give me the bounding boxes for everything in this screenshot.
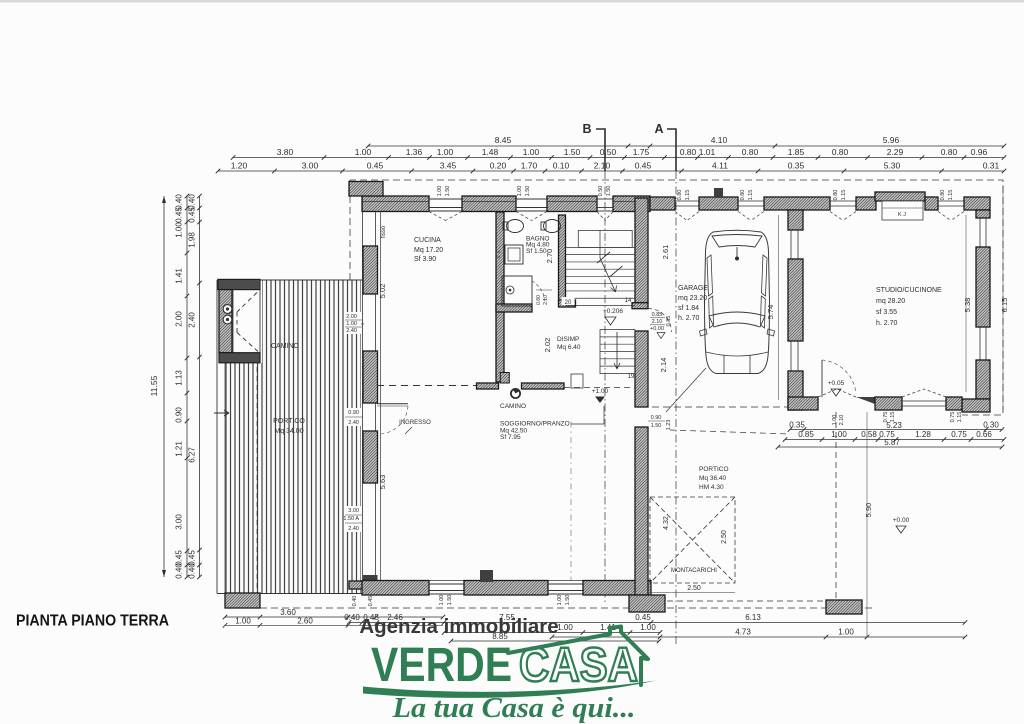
svg-text:0.80: 0.80 bbox=[833, 190, 839, 201]
svg-text:mq 28.20: mq 28.20 bbox=[876, 298, 905, 305]
svg-text:1.00: 1.00 bbox=[832, 415, 838, 426]
svg-text:1.00: 1.00 bbox=[439, 595, 445, 606]
svg-text:1.00: 1.00 bbox=[831, 430, 847, 439]
svg-text:1.13: 1.13 bbox=[175, 370, 184, 386]
svg-text:2.14: 2.14 bbox=[659, 358, 668, 373]
svg-text:2.02: 2.02 bbox=[543, 338, 552, 353]
svg-text:1.00: 1.00 bbox=[557, 595, 563, 606]
svg-text:19: 19 bbox=[628, 374, 635, 380]
svg-text:5.30: 5.30 bbox=[884, 161, 901, 171]
svg-text:1.00: 1.00 bbox=[523, 147, 540, 157]
svg-text:La tua Casa è qui...: La tua Casa è qui... bbox=[391, 693, 635, 724]
svg-text:0.90: 0.90 bbox=[651, 415, 662, 421]
svg-text:2.40: 2.40 bbox=[348, 420, 359, 426]
svg-text:Mq 34.00: Mq 34.00 bbox=[274, 428, 303, 435]
svg-text:0.80: 0.80 bbox=[941, 147, 958, 157]
svg-text:h. 2.70: h. 2.70 bbox=[678, 315, 700, 322]
svg-text:0.40: 0.40 bbox=[352, 596, 358, 607]
svg-text:Sf 7.95: Sf 7.95 bbox=[500, 434, 521, 441]
svg-text:1.00: 1.00 bbox=[437, 147, 454, 157]
svg-text:0.66: 0.66 bbox=[976, 430, 992, 439]
svg-text:1.98: 1.98 bbox=[188, 232, 197, 248]
svg-text:0.96: 0.96 bbox=[971, 147, 988, 157]
svg-text:1.50: 1.50 bbox=[651, 423, 662, 429]
svg-text:1.50: 1.50 bbox=[445, 186, 451, 197]
svg-text:3.00: 3.00 bbox=[348, 508, 359, 514]
svg-text:CAMINO: CAMINO bbox=[271, 343, 300, 350]
svg-text:0.75: 0.75 bbox=[951, 430, 967, 439]
svg-text:DISIMP: DISIMP bbox=[557, 336, 579, 343]
svg-text:1.48: 1.48 bbox=[482, 147, 499, 157]
svg-text:0.45: 0.45 bbox=[367, 161, 384, 171]
svg-text:A: A bbox=[654, 122, 663, 136]
svg-text:2.00: 2.00 bbox=[346, 314, 357, 320]
svg-text:Sf 1.50: Sf 1.50 bbox=[526, 248, 547, 255]
svg-text:0.35: 0.35 bbox=[788, 161, 805, 171]
svg-text:MONTACARICHI: MONTACARICHI bbox=[671, 568, 717, 574]
svg-text:1.23: 1.23 bbox=[666, 420, 672, 431]
svg-text:5.38: 5.38 bbox=[963, 298, 972, 313]
svg-text:+0.206: +0.206 bbox=[603, 308, 623, 315]
svg-text:5.23: 5.23 bbox=[886, 421, 902, 430]
svg-text:Sf 3.90: Sf 3.90 bbox=[414, 256, 436, 263]
svg-text:1.00: 1.00 bbox=[517, 186, 523, 197]
svg-text:1.41: 1.41 bbox=[175, 268, 184, 284]
svg-text:h. 2.70: h. 2.70 bbox=[876, 320, 898, 327]
svg-text:mq 23.20: mq 23.20 bbox=[678, 295, 707, 302]
svg-text:5.96: 5.96 bbox=[883, 135, 900, 145]
svg-text:1.01: 1.01 bbox=[699, 147, 716, 157]
svg-text:1.15: 1.15 bbox=[948, 190, 954, 201]
svg-text:0.20: 0.20 bbox=[490, 161, 507, 171]
svg-text:0.40: 0.40 bbox=[175, 563, 184, 579]
svg-text:1.20: 1.20 bbox=[231, 161, 248, 171]
svg-text:0.80: 0.80 bbox=[940, 190, 946, 201]
svg-text:0.50: 0.50 bbox=[600, 147, 617, 157]
svg-text:5.63: 5.63 bbox=[378, 475, 387, 490]
svg-text:1.15: 1.15 bbox=[841, 190, 847, 201]
svg-text:GARAGE: GARAGE bbox=[678, 285, 708, 292]
svg-text:1.00: 1.00 bbox=[175, 222, 184, 238]
svg-text:1.50: 1.50 bbox=[525, 186, 531, 197]
svg-text:0.75: 0.75 bbox=[950, 412, 956, 423]
svg-text:2.29: 2.29 bbox=[887, 147, 904, 157]
svg-text:1.15: 1.15 bbox=[748, 190, 754, 201]
svg-text:VERDE: VERDE bbox=[371, 639, 512, 692]
svg-text:3.60: 3.60 bbox=[280, 608, 296, 617]
svg-text:Mq 6.40: Mq 6.40 bbox=[557, 344, 581, 351]
svg-text:K J: K J bbox=[898, 212, 906, 218]
svg-text:0.10: 0.10 bbox=[553, 161, 570, 171]
svg-text:B: B bbox=[582, 122, 591, 136]
svg-text:4.32: 4.32 bbox=[663, 516, 670, 530]
svg-text:sf 1.84: sf 1.84 bbox=[678, 305, 699, 312]
svg-text:+0.05: +0.05 bbox=[828, 380, 845, 387]
svg-text:+0.00: +0.00 bbox=[650, 326, 664, 332]
svg-text:0.30: 0.30 bbox=[983, 421, 999, 430]
svg-text:2.40: 2.40 bbox=[346, 328, 357, 334]
svg-text:1.00: 1.00 bbox=[235, 617, 251, 626]
svg-text:0.80: 0.80 bbox=[832, 147, 849, 157]
svg-text:3.45: 3.45 bbox=[440, 161, 457, 171]
svg-text:1.00: 1.00 bbox=[355, 147, 372, 157]
svg-text:1.50: 1.50 bbox=[447, 595, 453, 606]
svg-text:HM 4.30: HM 4.30 bbox=[699, 484, 724, 491]
svg-text:PORTICO: PORTICO bbox=[699, 466, 729, 473]
svg-text:20: 20 bbox=[565, 300, 572, 306]
svg-text:1.50: 1.50 bbox=[606, 186, 612, 197]
svg-text:5.90: 5.90 bbox=[864, 503, 873, 518]
svg-text:6.27: 6.27 bbox=[188, 447, 197, 463]
svg-text:2.60: 2.60 bbox=[297, 617, 313, 626]
svg-text:0.58: 0.58 bbox=[861, 430, 877, 439]
svg-text:0.90: 0.90 bbox=[348, 410, 359, 416]
svg-text:0.90: 0.90 bbox=[175, 407, 184, 423]
svg-text:2.70: 2.70 bbox=[545, 249, 554, 264]
svg-text:1.00: 1.00 bbox=[838, 628, 854, 637]
svg-text:1.85: 1.85 bbox=[788, 147, 805, 157]
svg-text:0.40: 0.40 bbox=[344, 613, 360, 622]
svg-text:1.00: 1.00 bbox=[640, 623, 656, 632]
svg-text:0.45: 0.45 bbox=[635, 613, 651, 622]
svg-text:A: A bbox=[361, 321, 364, 326]
svg-text:0.50: 0.50 bbox=[598, 186, 604, 197]
svg-text:fisso: fisso bbox=[381, 225, 387, 238]
svg-text:0.80: 0.80 bbox=[742, 147, 759, 157]
svg-text:2.50: 2.50 bbox=[687, 585, 701, 592]
svg-text:8.45: 8.45 bbox=[495, 135, 512, 145]
svg-text:0.80: 0.80 bbox=[536, 295, 542, 305]
svg-text:2.40: 2.40 bbox=[348, 526, 359, 532]
svg-text:2.10: 2.10 bbox=[594, 161, 611, 171]
svg-text:0.40: 0.40 bbox=[188, 563, 197, 579]
svg-text:2.10: 2.10 bbox=[652, 319, 663, 325]
svg-text:0.45: 0.45 bbox=[188, 207, 197, 223]
svg-text:1.75: 1.75 bbox=[633, 147, 650, 157]
svg-text:1.50 A: 1.50 A bbox=[343, 516, 359, 522]
svg-text:0.85: 0.85 bbox=[666, 316, 672, 327]
svg-text:4.10: 4.10 bbox=[711, 135, 728, 145]
svg-text:0.31: 0.31 bbox=[983, 161, 1000, 171]
svg-text:0.45: 0.45 bbox=[175, 207, 184, 223]
svg-text:6.13: 6.13 bbox=[745, 613, 761, 622]
svg-text:0.80: 0.80 bbox=[740, 190, 746, 201]
svg-text:PORTICO: PORTICO bbox=[273, 418, 305, 425]
svg-text:Mq 17.20: Mq 17.20 bbox=[414, 247, 443, 254]
svg-text:2.00: 2.00 bbox=[175, 311, 184, 327]
svg-text:2.10: 2.10 bbox=[543, 295, 549, 305]
svg-text:1.00: 1.00 bbox=[346, 321, 357, 327]
svg-text:2.40: 2.40 bbox=[188, 312, 197, 328]
svg-text:6.15: 6.15 bbox=[1000, 298, 1009, 313]
svg-text:1.21: 1.21 bbox=[175, 441, 184, 457]
svg-text:CAMINO: CAMINO bbox=[500, 403, 526, 410]
svg-text:14: 14 bbox=[625, 298, 632, 304]
svg-text:PIANTA PIANO TERRA: PIANTA PIANO TERRA bbox=[16, 613, 169, 630]
svg-text:5.87: 5.87 bbox=[884, 438, 900, 447]
svg-text:3.00: 3.00 bbox=[175, 514, 184, 530]
svg-text:5.74: 5.74 bbox=[766, 305, 775, 320]
svg-text:1.15: 1.15 bbox=[685, 190, 691, 201]
svg-text:0.85: 0.85 bbox=[798, 430, 814, 439]
svg-text:1.00: 1.00 bbox=[437, 186, 443, 197]
svg-text:1.36: 1.36 bbox=[406, 147, 423, 157]
svg-text:0.80: 0.80 bbox=[677, 190, 683, 201]
svg-text:1.28: 1.28 bbox=[915, 430, 931, 439]
svg-text:1.50: 1.50 bbox=[565, 595, 571, 606]
svg-text:0.85: 0.85 bbox=[652, 312, 663, 318]
svg-text:0.45: 0.45 bbox=[368, 596, 374, 607]
svg-text:0.45: 0.45 bbox=[635, 161, 652, 171]
svg-text:1.15: 1.15 bbox=[957, 412, 963, 423]
svg-text:1.50: 1.50 bbox=[564, 147, 581, 157]
svg-text:1.70: 1.70 bbox=[521, 161, 538, 171]
svg-text:11.55: 11.55 bbox=[149, 375, 159, 396]
svg-text:5.02: 5.02 bbox=[378, 284, 387, 299]
svg-text:Agenzia immobiliare: Agenzia immobiliare bbox=[359, 615, 558, 638]
svg-text:INGRESSO: INGRESSO bbox=[399, 420, 431, 426]
svg-text:4.11: 4.11 bbox=[712, 161, 728, 171]
svg-text:3.00: 3.00 bbox=[302, 161, 319, 171]
svg-text:1.00: 1.00 bbox=[557, 623, 573, 632]
svg-text:+0.00: +0.00 bbox=[893, 517, 910, 524]
svg-text:Mq 36.40: Mq 36.40 bbox=[699, 475, 726, 482]
svg-text:CUCINA: CUCINA bbox=[414, 237, 441, 244]
svg-text:4.73: 4.73 bbox=[735, 628, 751, 637]
svg-text:SOGGIORNO/PRANZO: SOGGIORNO/PRANZO bbox=[500, 421, 570, 428]
svg-text:3.80: 3.80 bbox=[277, 147, 294, 157]
svg-text:2.50: 2.50 bbox=[721, 530, 728, 544]
svg-text:+1.00: +1.00 bbox=[592, 388, 609, 395]
svg-text:2.61: 2.61 bbox=[661, 245, 670, 260]
svg-text:STUDIO/CUCINONE: STUDIO/CUCINONE bbox=[876, 287, 942, 294]
svg-text:0.80: 0.80 bbox=[680, 147, 697, 157]
svg-text:2.10: 2.10 bbox=[839, 415, 845, 426]
svg-text:sf 3.55: sf 3.55 bbox=[876, 309, 897, 316]
